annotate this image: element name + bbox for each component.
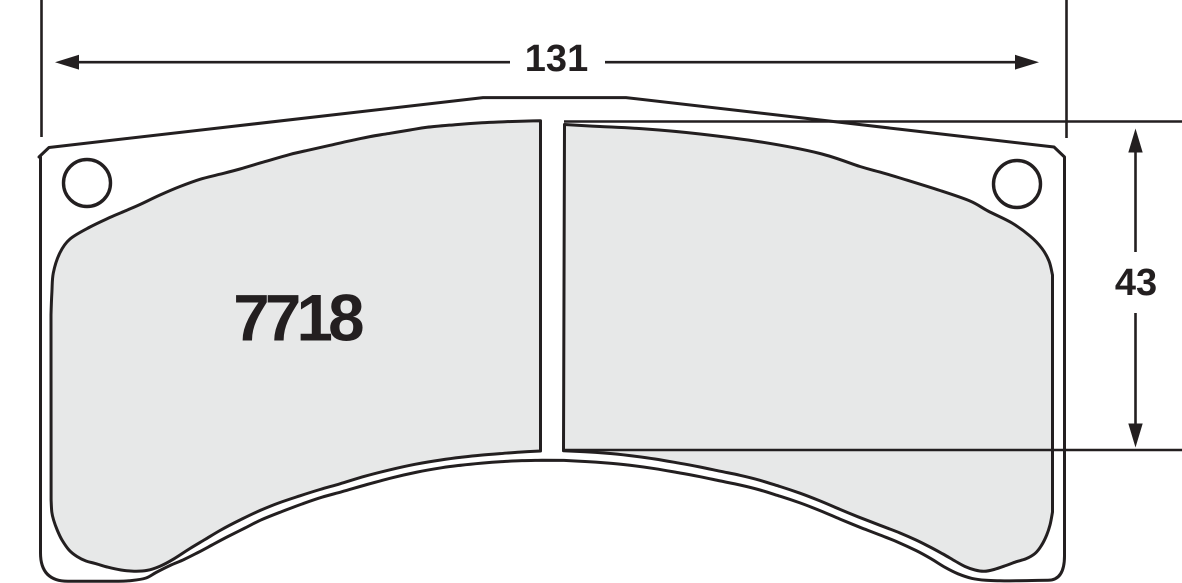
svg-text:131: 131 bbox=[525, 38, 588, 80]
svg-text:43: 43 bbox=[1115, 262, 1157, 304]
svg-text:7718: 7718 bbox=[233, 282, 363, 355]
